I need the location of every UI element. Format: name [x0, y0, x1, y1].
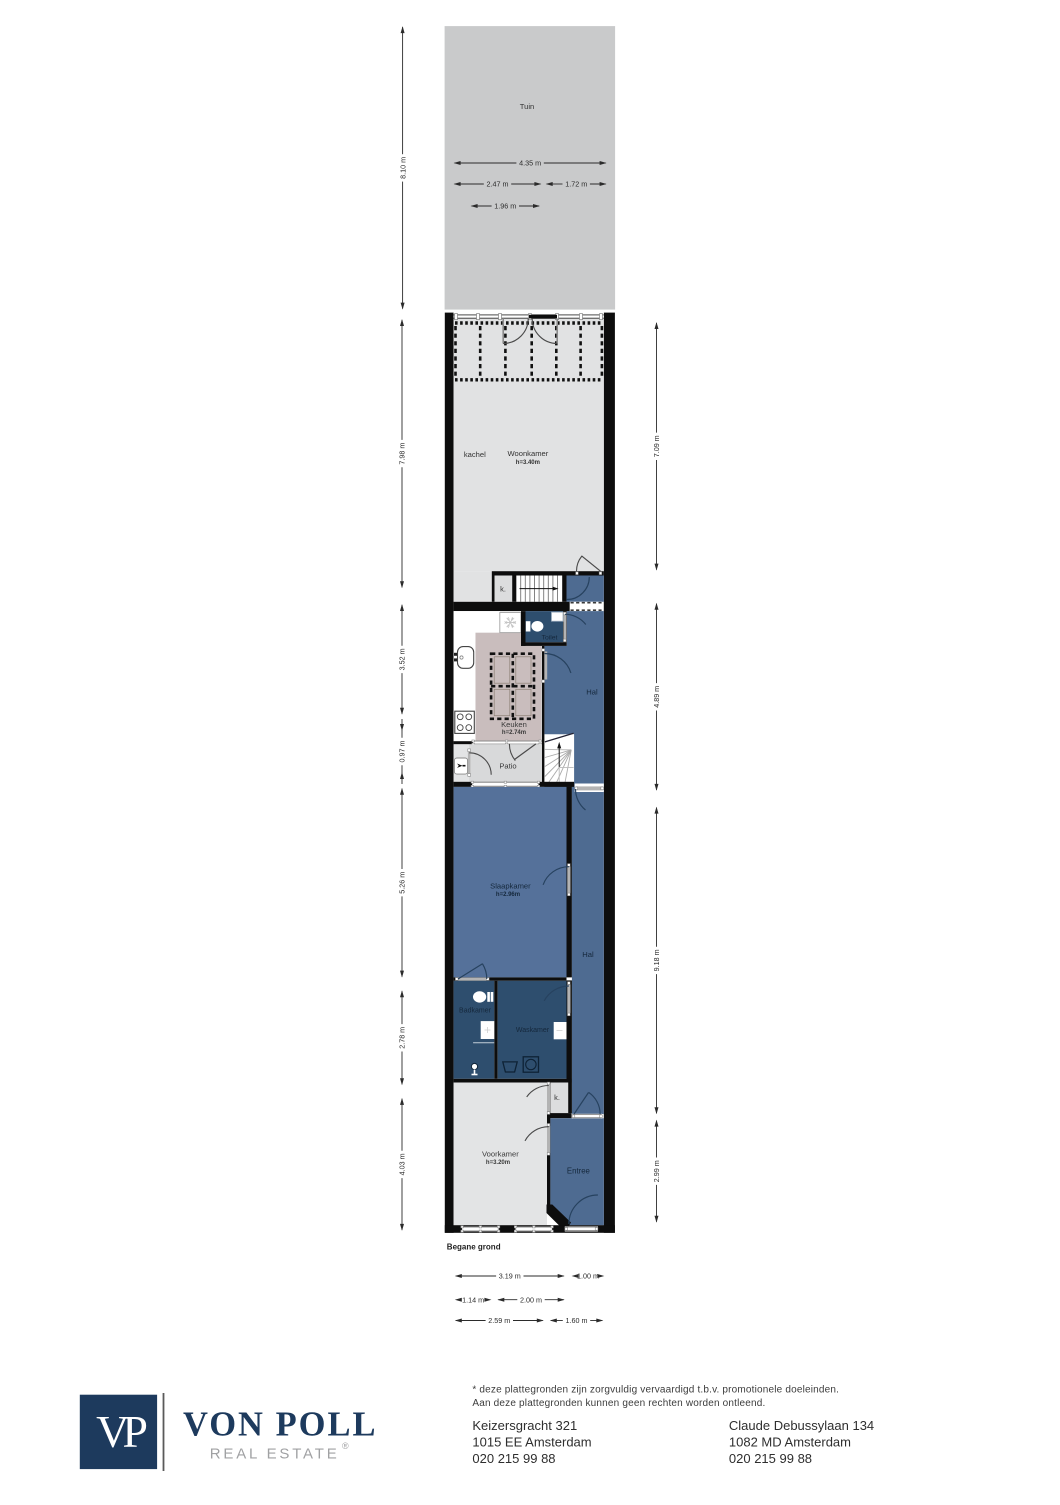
svg-text:Tuin: Tuin [520, 102, 535, 111]
svg-text:1.96 m: 1.96 m [494, 202, 516, 211]
svg-text:Begane grond: Begane grond [447, 1243, 501, 1252]
svg-text:Claude Debussylaan 134: Claude Debussylaan 134 [729, 1418, 874, 1433]
svg-text:Hal: Hal [586, 688, 598, 697]
svg-text:Aan deze plattegronden kunnen: Aan deze plattegronden kunnen geen recht… [472, 1398, 765, 1409]
svg-text:3.19 m: 3.19 m [499, 1272, 521, 1281]
svg-text:Keizersgracht 321: Keizersgracht 321 [472, 1418, 577, 1433]
svg-text:VON POLL: VON POLL [183, 1406, 378, 1444]
svg-text:4.35 m: 4.35 m [519, 159, 541, 168]
svg-text:1082 MD Amsterdam: 1082 MD Amsterdam [729, 1435, 851, 1450]
svg-text:020 215 99 88: 020 215 99 88 [472, 1451, 555, 1466]
svg-text:REAL ESTATE: REAL ESTATE [210, 1446, 340, 1463]
svg-text:Toilet: Toilet [542, 635, 558, 642]
svg-text:1.00 m: 1.00 m [577, 1272, 599, 1281]
svg-text:h=3.40m: h=3.40m [516, 460, 540, 466]
svg-text:2.47 m: 2.47 m [487, 180, 509, 189]
svg-text:1.60 m: 1.60 m [566, 1316, 588, 1325]
svg-text:Keuken: Keuken [501, 720, 527, 729]
svg-text:Entree: Entree [567, 1167, 590, 1176]
svg-text:1.72 m: 1.72 m [565, 180, 587, 189]
svg-text:k.: k. [500, 585, 506, 594]
svg-text:2.78 m: 2.78 m [398, 1027, 407, 1049]
svg-text:0.97 m: 0.97 m [398, 741, 407, 763]
svg-text:Hal: Hal [582, 950, 594, 959]
svg-text:kachel: kachel [464, 450, 486, 459]
svg-text:2.99 m: 2.99 m [652, 1160, 661, 1182]
svg-text:5.26 m: 5.26 m [398, 872, 407, 894]
svg-text:3.52 m: 3.52 m [398, 648, 407, 670]
svg-text:®: ® [342, 1441, 349, 1451]
svg-text:7.98 m: 7.98 m [398, 443, 407, 465]
svg-text:VP: VP [96, 1406, 146, 1457]
svg-text:4.89 m: 4.89 m [652, 686, 661, 708]
svg-text:4.03 m: 4.03 m [398, 1153, 407, 1175]
svg-text:1015 EE Amsterdam: 1015 EE Amsterdam [472, 1435, 591, 1450]
svg-text:2.59 m: 2.59 m [488, 1316, 510, 1325]
svg-text:2.00 m: 2.00 m [520, 1295, 542, 1304]
svg-text:h=2.96m: h=2.96m [496, 892, 520, 898]
svg-text:1.14 m: 1.14 m [462, 1295, 484, 1304]
svg-text:Woonkamer: Woonkamer [507, 449, 548, 458]
svg-text:* deze plattegronden zijn zorg: * deze plattegronden zijn zorgvuldig ver… [472, 1385, 839, 1396]
svg-text:k.: k. [554, 1093, 560, 1102]
svg-text:9.18 m: 9.18 m [652, 949, 661, 971]
svg-text:Waskamer: Waskamer [516, 1027, 550, 1034]
svg-text:Badkamer: Badkamer [459, 1008, 492, 1015]
svg-text:8.10 m: 8.10 m [398, 157, 407, 179]
svg-text:7.09 m: 7.09 m [652, 435, 661, 457]
svg-text:h=3.20m: h=3.20m [486, 1160, 510, 1166]
svg-text:Patio: Patio [499, 762, 516, 771]
svg-text:020 215 99 88: 020 215 99 88 [729, 1451, 812, 1466]
svg-text:Voorkamer: Voorkamer [482, 1150, 519, 1159]
svg-text:h=2.74m: h=2.74m [502, 730, 526, 736]
svg-text:Slaapkamer: Slaapkamer [490, 882, 531, 891]
